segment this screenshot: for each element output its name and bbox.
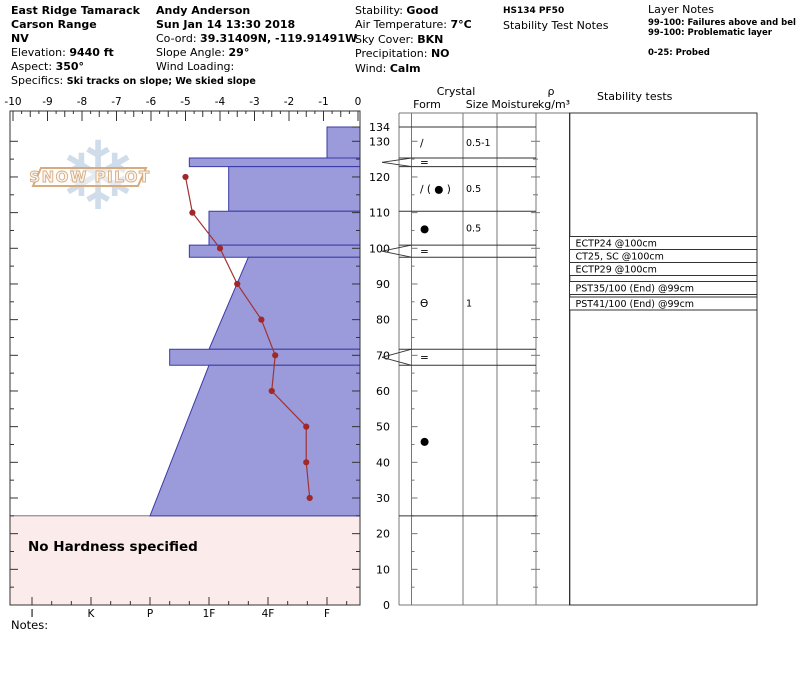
svg-text:-1: -1: [318, 96, 328, 108]
stability-value: Good: [406, 4, 438, 17]
temperature-point: [307, 495, 313, 501]
depth-tick-label: 90: [376, 278, 390, 291]
elevation-value: 9440 ft: [69, 46, 114, 59]
layer-bar: [327, 127, 360, 158]
crystal-size: 0.5-1: [466, 138, 491, 149]
crystal-form: ●: [420, 223, 429, 235]
specifics-value: Ski tracks on slope; We skied slope: [67, 76, 256, 87]
svg-text:-5: -5: [180, 96, 190, 108]
stability-test-result: ECTP24 @100cm: [576, 239, 657, 250]
depth-tick-label: 0: [383, 599, 390, 612]
slope-angle-value: 29°: [229, 46, 250, 59]
no-hardness-region: No Hardness specified: [10, 516, 360, 605]
snowpilot-profile-page: { "header": { "location": { "name": "Eas…: [0, 0, 800, 676]
wind-row: Wind: Calm: [355, 62, 472, 76]
depth-tick-label: 130: [369, 135, 390, 148]
hardness-tick-label: K: [88, 608, 96, 620]
layer-note: 99-100: Failures above and bel: [648, 18, 796, 28]
layer-notes-title: Layer Notes: [648, 3, 796, 16]
slope-angle-row: Slope Angle: 29°: [156, 46, 357, 60]
precipitation-row: Precipitation: NO: [355, 47, 472, 61]
stability-test-notes-title: Stability Test Notes: [503, 19, 608, 33]
wind-value: Calm: [390, 62, 421, 75]
depth-tick-label: 60: [376, 385, 390, 398]
stability-tests-header: Stability tests: [597, 90, 673, 103]
coord-label: Co-ord:: [156, 32, 200, 45]
crystal-form: =: [420, 157, 429, 169]
stability-test-result: PST41/100 (End) @99cm: [576, 299, 695, 310]
temperature-point: [272, 352, 278, 358]
layer-note: 0-25: Probed: [648, 48, 796, 58]
stability-test-result: PST35/100 (End) @99cm: [576, 284, 695, 295]
precipitation-label: Precipitation:: [355, 47, 431, 60]
temperature-point: [234, 281, 240, 287]
crystal-form: =: [420, 352, 429, 364]
depth-tick-label: 40: [376, 456, 390, 469]
coord-value: 39.31409N, -119.91491W: [200, 32, 357, 45]
stability-test-result: CT25, SC @100cm: [576, 252, 664, 263]
layer-note: 99-100: Problematic layer: [648, 28, 796, 38]
size-header: Size: [466, 98, 489, 111]
svg-text:-3: -3: [249, 96, 259, 108]
density-units: kg/m³: [538, 98, 570, 111]
temperature-point: [258, 317, 264, 323]
layer-notes: Layer Notes 99-100: Failures above and b…: [648, 3, 796, 58]
no-hardness-label: No Hardness specified: [28, 539, 198, 555]
crystal-form: ∕ ( ● ): [420, 184, 451, 196]
svg-text:-8: -8: [77, 96, 87, 108]
hardness-tick-label: 4F: [262, 608, 275, 620]
layer-bar: [229, 167, 360, 212]
elevation-label: Elevation:: [11, 46, 69, 59]
snow-profile-chart: ❄SNOW PILOTNo Hardness specified-10-9-8-…: [0, 0, 800, 676]
snowpilot-logo: ❄SNOW PILOT: [29, 122, 150, 232]
air-temp-value: 7°C: [450, 18, 471, 31]
air-temp-label: Air Temperature:: [355, 18, 450, 31]
depth-tick-label: 100: [369, 242, 390, 255]
depth-tick-label: 120: [369, 171, 390, 184]
sky-cover-label: Sky Cover:: [355, 33, 417, 46]
depth-tick-label: 110: [369, 207, 390, 220]
depth-tick-label: 80: [376, 314, 390, 327]
svg-text:-4: -4: [215, 96, 226, 108]
specifics-row: Specifics: Ski tracks on slope; We skied…: [11, 74, 256, 89]
stability-test-result: ECTP29 @100cm: [576, 265, 657, 276]
crystal-size: 0.5: [466, 184, 481, 195]
precipitation-value: NO: [431, 47, 450, 60]
coord-row: Co-ord: 39.31409N, -119.91491W: [156, 32, 357, 46]
logo-text: SNOW PILOT: [29, 168, 150, 186]
temperature-axis: -10-9-8-7-6-5-4-3-2-10: [4, 96, 361, 121]
stability-tests-box: [570, 113, 758, 605]
hardness-tick-label: 1F: [203, 608, 216, 620]
depth-tick-label: 10: [376, 563, 390, 576]
aspect-value: 350°: [56, 60, 84, 73]
crystal-form: Ɵ: [420, 298, 428, 310]
header-summary: HS134 PF50 Stability Test Notes: [503, 3, 608, 33]
sky-cover-row: Sky Cover: BKN: [355, 33, 472, 47]
stability-label: Stability:: [355, 4, 406, 17]
snow-height-summary: HS134 PF50: [503, 5, 608, 17]
wind-label: Wind:: [355, 62, 390, 75]
layer-bar: [170, 349, 360, 365]
pit-datetime: Sun Jan 14 13:30 2018: [156, 18, 357, 32]
moisture-header: Moisture: [491, 98, 539, 111]
temperature-point: [189, 210, 195, 216]
crystal-header: Crystal: [437, 85, 476, 98]
layer-bar: [209, 211, 360, 245]
slope-angle-label: Slope Angle:: [156, 46, 229, 59]
svg-text:0: 0: [355, 96, 362, 108]
layer-bar: [189, 158, 360, 167]
temperature-point: [182, 174, 188, 180]
depth-tick-label: 20: [376, 528, 390, 541]
crystal-form: ∕: [420, 137, 424, 149]
wind-loading-label: Wind Loading:: [156, 60, 234, 73]
hardness-bars: [150, 127, 360, 516]
observer-name: Andy Anderson: [156, 4, 357, 18]
temperature-point: [269, 388, 275, 394]
depth-tick-label: 134: [369, 121, 390, 134]
header-conditions: Stability: Good Air Temperature: 7°C Sky…: [355, 4, 472, 76]
depth-tick-label: 50: [376, 421, 390, 434]
hardness-tick-label: F: [324, 608, 330, 620]
air-temp-row: Air Temperature: 7°C: [355, 18, 472, 32]
crystal-size: 1: [466, 299, 472, 310]
aspect-label: Aspect:: [11, 60, 56, 73]
temperature-point: [217, 245, 223, 251]
svg-text:-10: -10: [4, 96, 21, 108]
crystal-size: 0.5: [466, 223, 481, 234]
svg-text:-7: -7: [111, 96, 121, 108]
layer-bar: [150, 365, 360, 516]
crystal-panel: ∕0.5-1=∕ ( ● )0.5●0.5=Ɵ1=●CrystalFormSiz…: [382, 85, 757, 605]
stability-row: Stability: Good: [355, 4, 472, 18]
header-observer: Andy Anderson Sun Jan 14 13:30 2018 Co-o…: [156, 4, 357, 74]
layer-bar: [189, 245, 360, 257]
density-header: ρ: [548, 85, 555, 98]
crystal-form: =: [420, 246, 429, 258]
notes-label: Notes:: [11, 618, 48, 632]
temperature-point: [303, 459, 309, 465]
crystal-form: ●: [420, 435, 429, 447]
svg-text:-6: -6: [146, 96, 157, 108]
specifics-label: Specifics:: [11, 74, 67, 87]
form-header: Form: [413, 98, 441, 111]
sky-cover-value: BKN: [417, 33, 443, 46]
svg-text:-2: -2: [284, 96, 294, 108]
svg-text:-9: -9: [42, 96, 52, 108]
wind-loading-row: Wind Loading:: [156, 60, 357, 74]
depth-tick-label: 30: [376, 492, 390, 505]
hardness-tick-label: P: [147, 608, 153, 620]
temperature-point: [303, 424, 309, 430]
